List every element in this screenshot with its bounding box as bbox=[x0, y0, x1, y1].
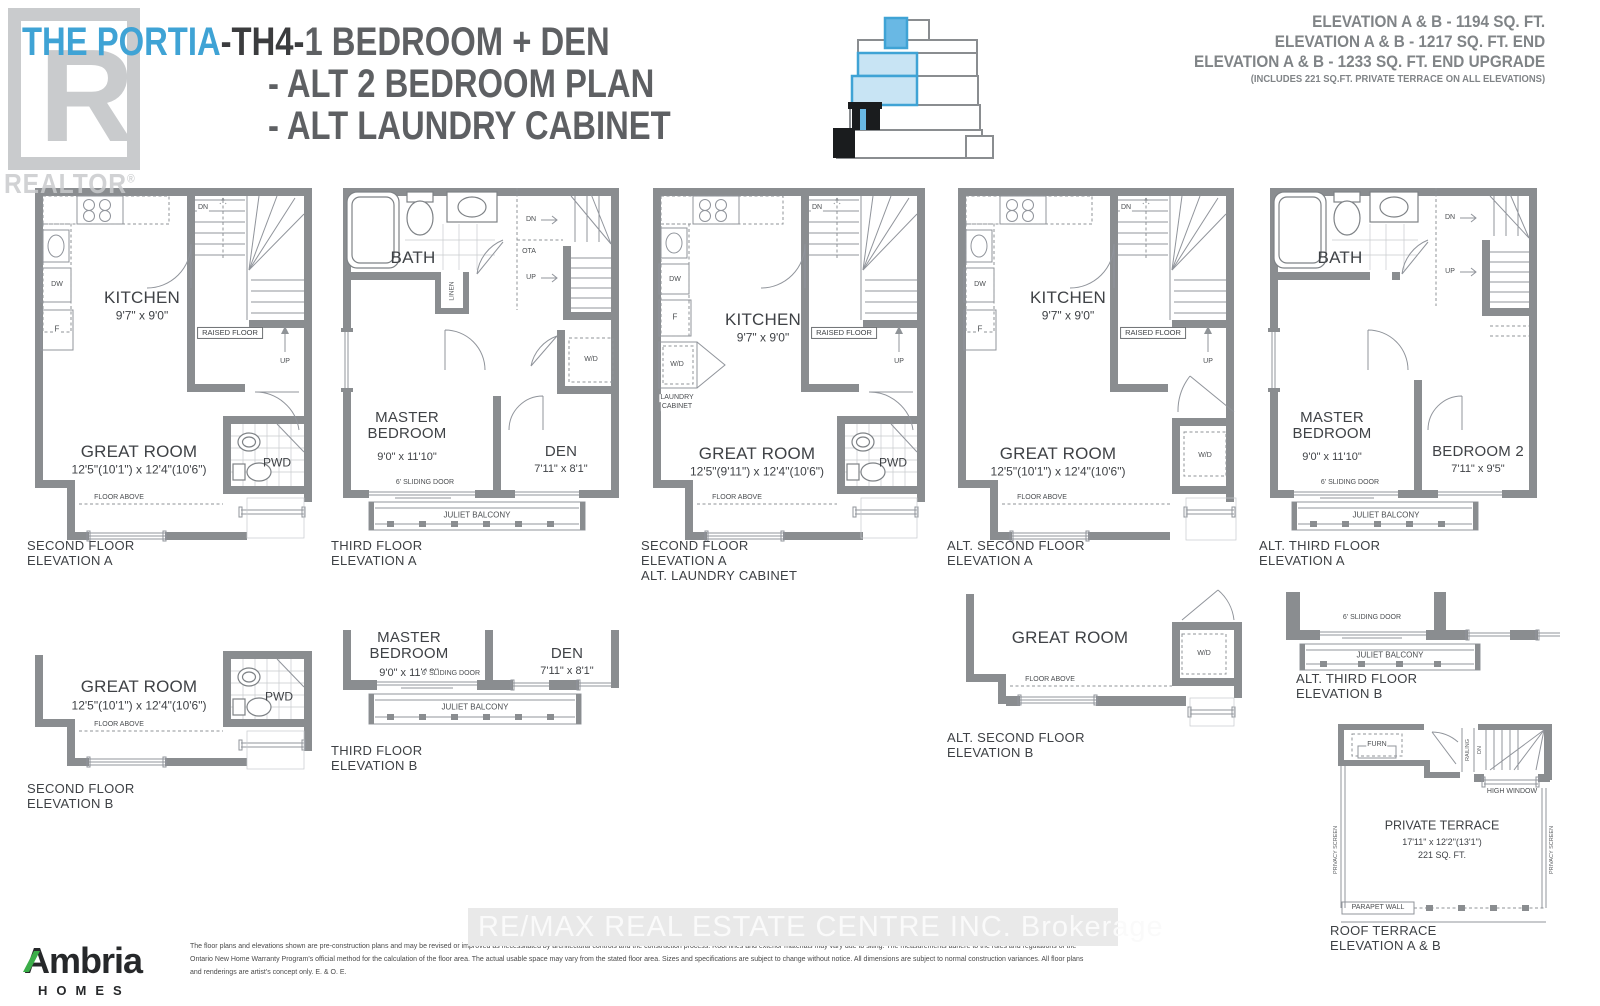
room-label-great-room: GREAT ROOM bbox=[81, 443, 198, 461]
plan-second-floor-a-alt-laundry: KITCHEN 9'7" x 9'0" GREAT ROOM 12'5"(9'1… bbox=[645, 180, 933, 545]
floor-above-label: FLOOR ABOVE bbox=[1024, 676, 1076, 684]
room-label-bath: BATH bbox=[391, 249, 436, 267]
caption-third-floor-a: THIRD FLOOR ELEVATION A bbox=[331, 538, 422, 568]
dn-label: DN bbox=[1444, 214, 1456, 222]
brokerage-watermark-text: RE/MAX REAL ESTATE CENTRE INC. Brokerage bbox=[478, 911, 1164, 944]
wd-label: W/D bbox=[583, 356, 599, 364]
parapet-wall-label: PARAPET WALL bbox=[1351, 904, 1406, 912]
up-label: UP bbox=[525, 274, 537, 282]
dn-label: DN bbox=[525, 216, 537, 224]
laundry-cabinet-label-2: CABINET bbox=[661, 403, 693, 411]
page-title: THE PORTIA-TH4-1 BEDROOM + DEN bbox=[22, 22, 610, 62]
elevation-note: (INCLUDES 221 SQ.FT. PRIVATE TERRACE ON … bbox=[1194, 72, 1545, 86]
disclaimer-line-3: and renderings are artist's concept only… bbox=[190, 966, 1200, 979]
builder-name: Ambria bbox=[24, 940, 184, 982]
dn-label: DN bbox=[197, 204, 209, 212]
terrace-area-label: 221 SQ. FT. bbox=[1418, 851, 1466, 861]
sliding-door-label: 6' SLIDING DOOR bbox=[395, 479, 455, 487]
up-label: UP bbox=[893, 358, 905, 366]
room-dims-kitchen: 9'7" x 9'0" bbox=[1042, 310, 1094, 323]
wd-label: W/D bbox=[669, 361, 685, 369]
builder-logo: Ambria HOMES bbox=[24, 940, 184, 998]
building-key-diagram bbox=[800, 8, 995, 160]
room-dims-master-bedroom: 9'0" x 11'10" bbox=[377, 452, 437, 464]
room-label-pwd: PWD bbox=[263, 457, 291, 470]
wd-label: W/D bbox=[1197, 452, 1213, 460]
room-label-den: DEN bbox=[545, 444, 577, 460]
room-label-pwd: PWD bbox=[879, 457, 907, 470]
laundry-cabinet-label-1: LAUNDRY bbox=[659, 394, 694, 402]
raised-floor-label: RAISED FLOOR bbox=[811, 327, 877, 339]
juliet-balcony-label: JULIET BALCONY bbox=[1352, 512, 1421, 521]
room-dims-great-room: 12'5"(10'1") x 12'4"(10'6") bbox=[991, 466, 1126, 479]
furnace-label: FURN bbox=[1366, 741, 1387, 749]
ca´ption-roof-terrace: ROOF TERRACE ELEVATION A & B bbox=[1330, 923, 1441, 953]
dn-label: DN bbox=[1120, 204, 1132, 212]
fridge-label: F bbox=[54, 326, 61, 335]
realtor-watermark-text: REALTOR® bbox=[4, 168, 136, 200]
plan-third-floor-a: BATH LINEN DN OTA UP W/D MASTER BEDROOM … bbox=[335, 180, 627, 545]
high-window-label: HIGH WINDOW bbox=[1486, 788, 1538, 796]
dn-label: DN bbox=[811, 204, 823, 212]
plan-third-floor-b: MASTER BEDROOM 9'0" x 11'10" DEN 7'11" x… bbox=[335, 630, 627, 740]
room-dims-great-room: 12'5"(10'1") x 12'4"(10'6") bbox=[72, 464, 207, 477]
room-label-great-room: GREAT ROOM bbox=[699, 445, 816, 463]
plan-alt-third-floor-b: 6' SLIDING DOOR JULIET BALCONY bbox=[1262, 592, 1562, 677]
registered-mark: ® bbox=[127, 172, 136, 186]
disclaimer-line-2: Ontario New Home Warranty Program's offi… bbox=[190, 953, 1200, 966]
juliet-balcony-label: JULIET BALCONY bbox=[441, 704, 510, 713]
room-label-kitchen: KITCHEN bbox=[1030, 289, 1106, 307]
railing-label: RAILING bbox=[1465, 739, 1471, 761]
caption-alt-third-floor-a: ALT. THIRD FLOOR ELEVATION A bbox=[1259, 538, 1380, 568]
caption-alt-second-floor-b: ALT. SECOND FLOOR ELEVATION B bbox=[947, 730, 1085, 760]
plan-alt-third-floor-a: BATH DN UP MASTER BEDROOM 9'0" x 11'10" … bbox=[1262, 180, 1545, 545]
room-label-bedroom-2: BEDROOM 2 bbox=[1432, 444, 1524, 460]
caption-third-floor-b: THIRD FLOOR ELEVATION B bbox=[331, 743, 422, 773]
room-label-kitchen: KITCHEN bbox=[104, 289, 180, 307]
builder-subtitle: HOMES bbox=[38, 983, 184, 998]
sliding-door-label: 6' SLIDING DOOR bbox=[421, 670, 481, 678]
juliet-balcony-label: JULIET BALCONY bbox=[443, 512, 512, 521]
plan-second-floor-a: KITCHEN 9'7" x 9'0" GREAT ROOM 12'5"(10'… bbox=[27, 180, 320, 545]
room-label-pwd: PWD bbox=[265, 691, 293, 704]
dn-label: DN bbox=[1477, 746, 1483, 754]
floor-above-label: FLOOR ABOVE bbox=[711, 494, 763, 502]
title-feature-1: 1 BEDROOM + DEN bbox=[304, 20, 609, 64]
room-dims-private-terrace: 17'11" x 12'2"(13'1") bbox=[1402, 838, 1482, 848]
room-label-great-room: GREAT ROOM bbox=[1000, 445, 1117, 463]
room-label-kitchen: KITCHEN bbox=[725, 311, 801, 329]
room-dims-bedroom-2: 7'11" x 9'5" bbox=[1451, 464, 1504, 476]
caption-alt-second-floor-a: ALT. SECOND FLOOR ELEVATION A bbox=[947, 538, 1085, 568]
plan-alt-second-floor-a: KITCHEN 9'7" x 9'0" GREAT ROOM 12'5"(10'… bbox=[950, 180, 1242, 545]
elevation-summary: ELEVATION A & B - 1194 SQ. FT. ELEVATION… bbox=[1155, 12, 1545, 86]
elevation-line-2: ELEVATION A & B - 1217 SQ. FT. END bbox=[1194, 32, 1545, 52]
room-label-bath: BATH bbox=[1318, 249, 1363, 267]
up-label: UP bbox=[1202, 358, 1214, 366]
caption-alt-third-floor-b: ALT. THIRD FLOOR ELEVATION B bbox=[1296, 671, 1417, 701]
room-dims-great-room: 12'5"(9'11") x 12'4"(10'6") bbox=[690, 466, 824, 479]
title-model: -TH4- bbox=[221, 20, 305, 64]
title-feature-3: - ALT LAUNDRY CABINET bbox=[268, 106, 671, 146]
room-label-private-terrace: PRIVATE TERRACE bbox=[1385, 819, 1500, 833]
room-label-great-room: GREAT ROOM bbox=[1012, 629, 1129, 647]
linen-label: LINEN bbox=[449, 281, 456, 300]
floor-plan-sheet: R REALTOR® THE PORTIA-TH4-1 BEDROOM + DE… bbox=[0, 0, 1600, 1006]
room-dims-kitchen: 9'7" x 9'0" bbox=[116, 310, 168, 323]
up-label: UP bbox=[279, 358, 291, 366]
room-dims-kitchen: 9'7" x 9'0" bbox=[737, 332, 789, 345]
room-dims-great-room: 12'5"(10'1") x 12'4"(10'6") bbox=[72, 700, 207, 713]
caption-second-floor-a-alt-laundry: SECOND FLOOR ELEVATION A ALT. LAUNDRY CA… bbox=[641, 538, 797, 583]
ambria-green-swoosh-icon bbox=[22, 950, 48, 972]
wd-label: W/D bbox=[1196, 650, 1212, 658]
title-brand: THE PORTIA bbox=[22, 20, 221, 64]
elevation-line-3: ELEVATION A & B - 1233 SQ. FT. END UPGRA… bbox=[1194, 52, 1545, 72]
plan-second-floor-b: GREAT ROOM 12'5"(10'1") x 12'4"(10'6") F… bbox=[27, 645, 320, 780]
privacy-screen-label-left: PRIVACY SCREEN bbox=[1333, 826, 1339, 874]
caption-second-floor-a: SECOND FLOOR ELEVATION A bbox=[27, 538, 135, 568]
elevation-line-1: ELEVATION A & B - 1194 SQ. FT. bbox=[1194, 12, 1545, 32]
room-dims-master-bedroom: 9'0" x 11'10" bbox=[1302, 452, 1362, 464]
up-label: UP bbox=[1444, 268, 1456, 276]
title-feature-2: - ALT 2 BEDROOM PLAN bbox=[268, 64, 654, 104]
juliet-balcony-label: JULIET BALCONY bbox=[1356, 652, 1425, 661]
dw-label: DW bbox=[668, 276, 682, 284]
dw-label: DW bbox=[50, 281, 64, 289]
room-label-master-bedroom: MASTER BEDROOM bbox=[339, 630, 479, 662]
raised-floor-label: RAISED FLOOR bbox=[1120, 327, 1186, 339]
fridge-label: F bbox=[672, 314, 679, 323]
sliding-door-label: 6' SLIDING DOOR bbox=[1342, 614, 1402, 622]
room-label-great-room: GREAT ROOM bbox=[81, 678, 198, 696]
dw-label: DW bbox=[973, 281, 987, 289]
room-label-den: DEN bbox=[551, 646, 583, 662]
room-dims-den: 7'11" x 8'1" bbox=[540, 666, 593, 678]
floor-above-label: FLOOR ABOVE bbox=[1016, 494, 1068, 502]
privacy-screen-label-right: PRIVACY SCREEN bbox=[1549, 826, 1555, 874]
room-dims-den: 7'11" x 8'1" bbox=[534, 464, 587, 476]
floor-above-label: FLOOR ABOVE bbox=[93, 494, 145, 502]
plan-alt-second-floor-b: GREAT ROOM FLOOR ABOVE W/D bbox=[950, 588, 1242, 728]
plan-roof-terrace: FURN RAILING DN HIGH WINDOW PRIVATE TERR… bbox=[1328, 700, 1553, 930]
caption-second-floor-b: SECOND FLOOR ELEVATION B bbox=[27, 781, 135, 811]
room-label-master-bedroom: MASTER BEDROOM bbox=[342, 410, 472, 442]
ota-label: OTA bbox=[521, 248, 537, 256]
fridge-label: F bbox=[977, 326, 984, 335]
floor-above-label: FLOOR ABOVE bbox=[93, 721, 145, 729]
brokerage-watermark: RE/MAX REAL ESTATE CENTRE INC. Brokerage bbox=[468, 908, 1118, 946]
raised-floor-label: RAISED FLOOR bbox=[197, 327, 263, 339]
sliding-door-label: 6' SLIDING DOOR bbox=[1320, 479, 1380, 487]
room-label-master-bedroom: MASTER BEDROOM bbox=[1272, 410, 1392, 442]
